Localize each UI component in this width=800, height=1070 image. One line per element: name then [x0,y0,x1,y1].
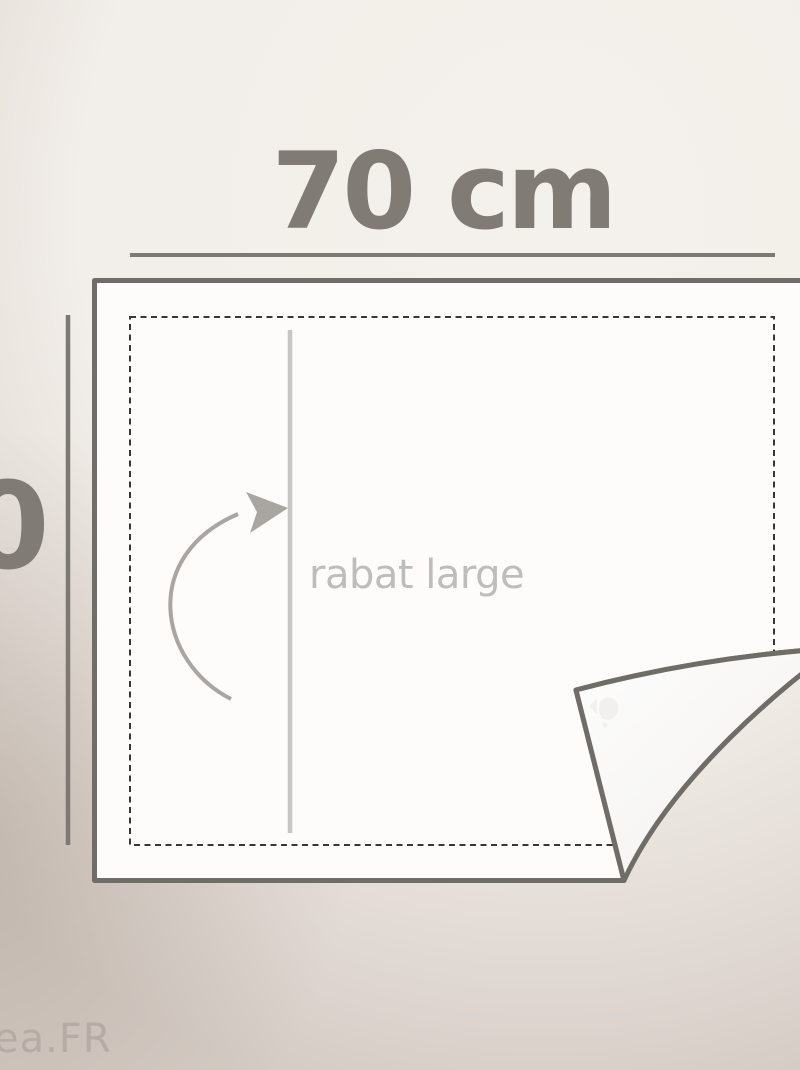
flap-label: rabat large [309,552,524,598]
dimension-diagram: 70 cm 0 rabat large ea.FR [0,0,800,1070]
width-label: 70 cm [272,130,615,253]
site-watermark: ea.FR [0,1016,112,1062]
diagram-canvas: 70 cm 0 rabat large ea.FR [0,0,800,1070]
height-label-partial: 0 [0,458,50,597]
